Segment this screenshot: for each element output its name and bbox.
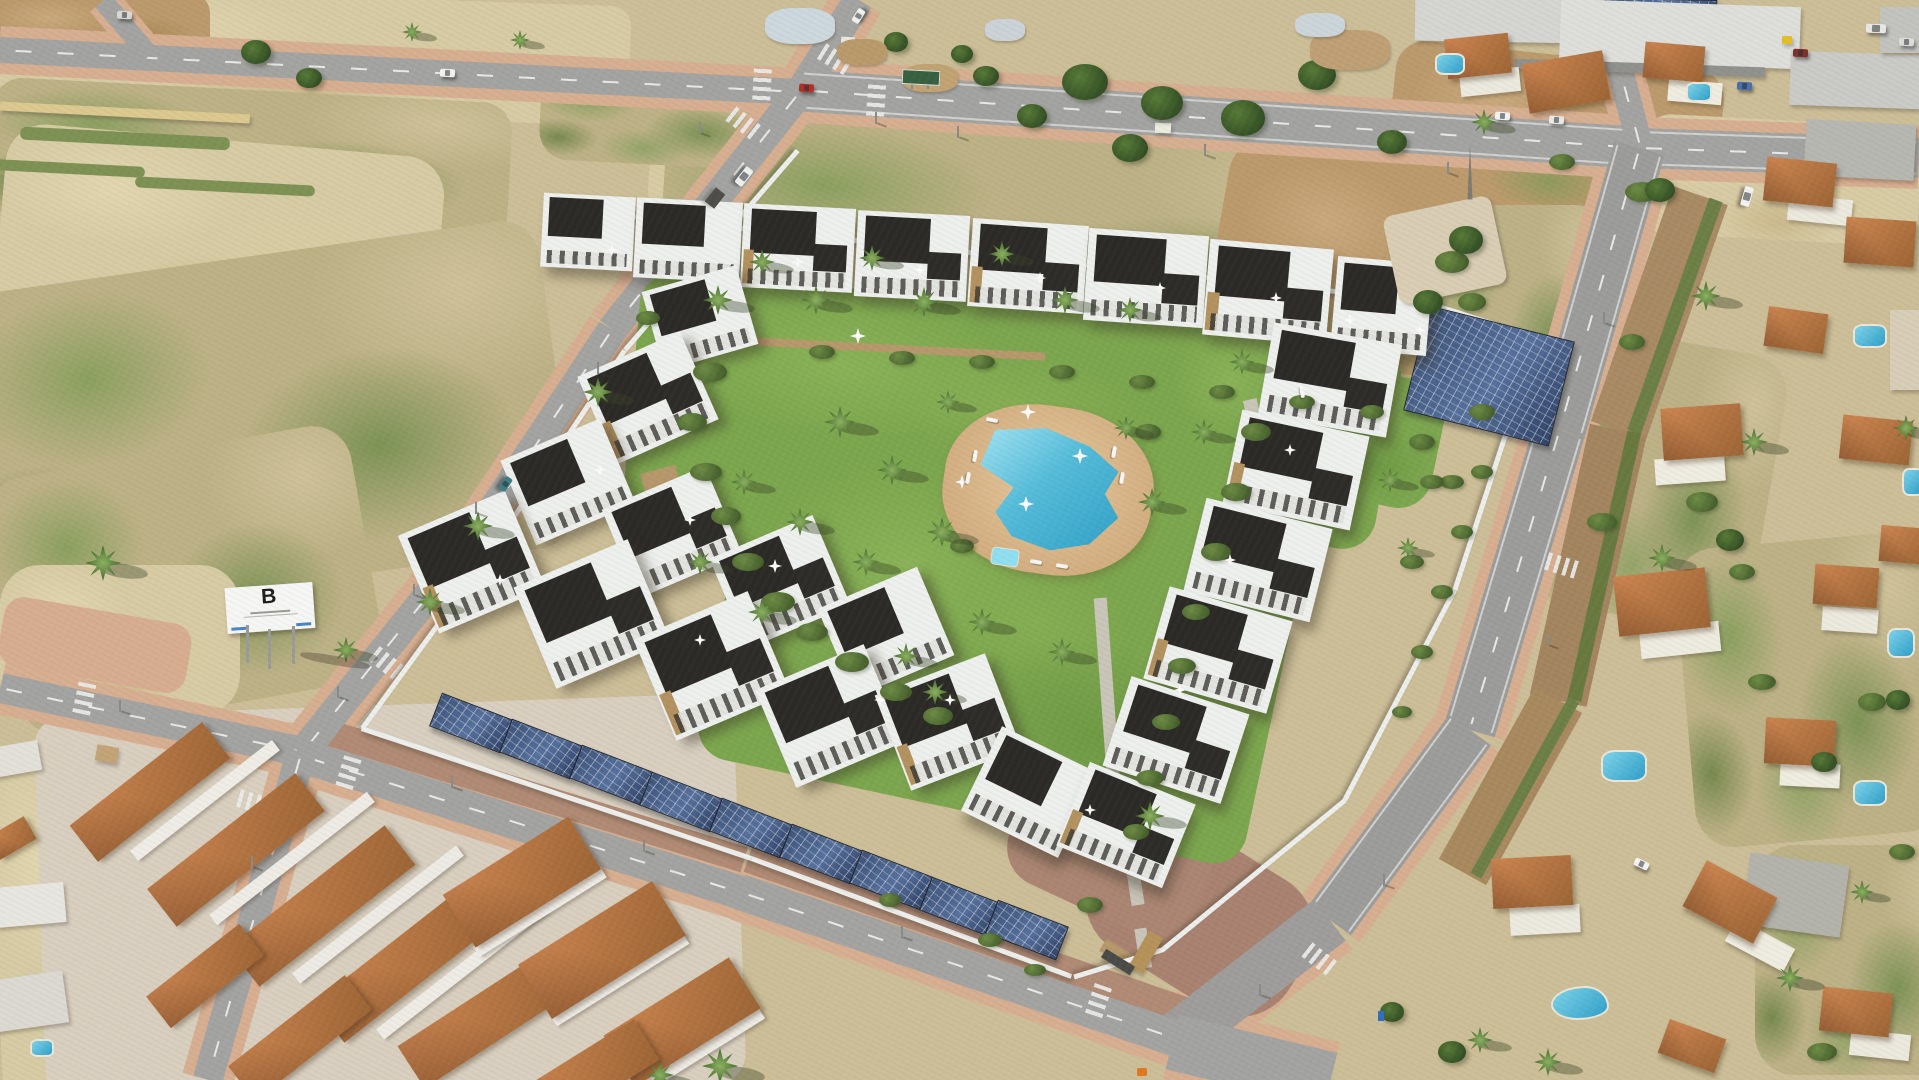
- palm-tree: [852, 548, 880, 576]
- palm-tree: [402, 22, 422, 42]
- bush: [1451, 525, 1473, 539]
- car-windshield: [1872, 25, 1880, 32]
- bush: [879, 893, 901, 907]
- car: [1792, 49, 1807, 58]
- roof-terrace: [813, 244, 848, 273]
- car-windshield: [739, 171, 749, 181]
- palm-tree: [801, 285, 831, 315]
- bush: [1469, 404, 1495, 420]
- bush: [1168, 658, 1196, 674]
- palm-tree: [877, 455, 907, 485]
- villa-roof: [1879, 525, 1919, 565]
- light-pole: [251, 856, 253, 868]
- villa-roof: [1843, 217, 1916, 268]
- roof-terrace: [605, 587, 653, 634]
- bush: [809, 345, 835, 359]
- bush: [1471, 465, 1493, 479]
- light-pole: [699, 122, 701, 134]
- light-pole: [643, 840, 645, 852]
- apartment-building: [740, 203, 856, 293]
- bush: [1458, 293, 1486, 311]
- villa-roof: [1819, 986, 1893, 1037]
- swimming-pool: [1601, 750, 1647, 782]
- palm-tree: [968, 608, 996, 636]
- bush: [1360, 405, 1384, 419]
- car: [1633, 857, 1650, 871]
- palm-tree: [463, 511, 493, 541]
- car-windshield: [1499, 113, 1505, 119]
- billboard-leg: [292, 626, 295, 664]
- bush: [1619, 334, 1645, 350]
- road-sign: [1378, 1011, 1384, 1021]
- light-pole: [337, 686, 339, 698]
- bush: [1129, 375, 1155, 389]
- bush: [880, 683, 912, 701]
- roof-terrace: [1161, 274, 1199, 306]
- bush: [1049, 365, 1075, 379]
- villa-roof: [1491, 855, 1574, 909]
- light-pole: [901, 926, 903, 938]
- roof-terrace: [725, 639, 773, 686]
- car: [439, 69, 454, 78]
- car-windshield: [1743, 191, 1751, 200]
- car-windshield: [803, 85, 809, 91]
- bush: [1182, 604, 1210, 620]
- apartment-building: [540, 193, 636, 272]
- car: [1898, 38, 1913, 47]
- palm-tree: [510, 30, 530, 50]
- bush: [796, 623, 828, 641]
- direction-sign: [902, 69, 941, 86]
- bush: [1411, 645, 1433, 659]
- structure: [1789, 51, 1919, 110]
- villa-roof: [1660, 403, 1743, 460]
- bush: [1152, 714, 1180, 730]
- light-pole: [875, 112, 877, 124]
- bush: [711, 507, 741, 525]
- bush: [1587, 513, 1617, 531]
- spa-pool: [990, 546, 1020, 568]
- villa-roof: [1658, 1019, 1727, 1073]
- light-pole: [475, 502, 477, 514]
- light-pole: [451, 776, 453, 788]
- structure: [1155, 123, 1171, 134]
- billboard-accent: [296, 622, 312, 626]
- car-windshield: [1741, 83, 1747, 89]
- palm-tree: [748, 598, 776, 626]
- villa-roof: [1763, 156, 1837, 207]
- roof-terrace: [1309, 468, 1354, 506]
- light-pole: [957, 126, 959, 138]
- tree: [1413, 290, 1443, 314]
- bush: [1077, 897, 1103, 913]
- villa-roof: [1643, 41, 1706, 82]
- light-pole: [1447, 162, 1449, 174]
- tree: [1438, 1041, 1466, 1063]
- car-windshield: [1553, 117, 1559, 123]
- swimming-pool: [1551, 986, 1609, 1020]
- swimming-pool: [1902, 468, 1919, 496]
- bush: [1748, 674, 1776, 690]
- tree: [1017, 104, 1047, 128]
- bush: [1409, 434, 1435, 450]
- palm-tree: [1467, 1027, 1493, 1053]
- tree: [1716, 529, 1744, 551]
- light-pole: [413, 584, 415, 596]
- bush: [1729, 564, 1755, 580]
- palm-tree: [1135, 801, 1165, 831]
- palm-tree: [909, 287, 939, 317]
- billboard-logo: B: [225, 582, 314, 612]
- bush: [732, 553, 764, 571]
- palm-tree: [687, 549, 713, 575]
- tree: [1062, 64, 1108, 101]
- bush: [1221, 483, 1251, 501]
- roof-terrace: [1283, 288, 1323, 322]
- swimming-pool: [1435, 53, 1465, 75]
- car-windshield: [121, 12, 127, 18]
- bush: [889, 351, 915, 365]
- structure: [0, 882, 67, 928]
- car-windshield: [501, 480, 509, 488]
- bush: [1136, 770, 1164, 786]
- roof-terrace: [1185, 740, 1230, 780]
- bush: [923, 707, 953, 725]
- bush: [1431, 585, 1453, 599]
- palm-tree: [922, 679, 948, 705]
- debris-pile: [765, 8, 835, 44]
- bush: [690, 463, 722, 481]
- tree: [884, 32, 908, 51]
- bush: [1024, 964, 1046, 976]
- tree: [1645, 178, 1675, 202]
- structure: [1821, 606, 1879, 634]
- car: [1866, 23, 1886, 33]
- bush: [1392, 706, 1412, 718]
- car: [1736, 82, 1751, 91]
- bush: [1686, 492, 1718, 512]
- stone-cladding: [970, 266, 983, 302]
- roof-terrace: [484, 536, 529, 581]
- structure: [1890, 310, 1919, 390]
- bush: [969, 355, 995, 369]
- car-windshield: [854, 12, 862, 20]
- bush: [1435, 251, 1469, 273]
- bush: [677, 413, 707, 431]
- roof-terrace: [1270, 559, 1315, 598]
- roof-terrace: [1043, 262, 1080, 293]
- light-pole: [1259, 984, 1261, 996]
- tree: [1886, 690, 1910, 709]
- swimming-pool: [30, 1039, 54, 1057]
- light-pole: [1383, 874, 1385, 886]
- work-marker: [1137, 1068, 1147, 1076]
- aerial-photo: B: [0, 0, 1919, 1080]
- roof-terrace: [1228, 649, 1273, 689]
- bush: [1858, 693, 1886, 711]
- billboard-sign: B: [225, 582, 316, 634]
- roof-terrace: [792, 557, 835, 599]
- billboard-leg: [246, 625, 249, 663]
- bush: [636, 311, 660, 325]
- billboard-leg: [268, 629, 271, 669]
- light-pole: [119, 700, 121, 712]
- debris-pile: [837, 39, 887, 65]
- bush: [1889, 844, 1915, 860]
- villa-roof: [1613, 567, 1711, 636]
- bush: [1209, 385, 1235, 399]
- palm-tree: [893, 643, 919, 669]
- car: [1494, 111, 1510, 120]
- tree: [1221, 100, 1265, 135]
- swimming-pool: [1853, 324, 1887, 348]
- light-pole: [1204, 144, 1206, 156]
- car-windshield: [444, 70, 450, 76]
- structure: [1509, 904, 1580, 936]
- palm-tree: [786, 508, 814, 536]
- car-windshield: [1903, 39, 1909, 45]
- billboard-accent: [231, 627, 247, 631]
- roof-terrace: [660, 373, 703, 415]
- light-pole: [597, 362, 599, 374]
- bush: [978, 933, 1002, 947]
- car: [1548, 115, 1564, 124]
- swimming-pool: [1887, 628, 1915, 658]
- bush: [1807, 1043, 1837, 1061]
- light-pole: [1547, 634, 1549, 646]
- debris-pile: [985, 19, 1025, 41]
- stone-cladding: [1205, 292, 1219, 331]
- car: [798, 83, 814, 92]
- palm-tree: [703, 285, 733, 315]
- bush: [693, 362, 727, 382]
- palm-tree: [583, 377, 613, 407]
- palm-tree: [927, 517, 957, 547]
- car-windshield: [1797, 50, 1803, 56]
- bush: [1201, 543, 1231, 561]
- debris-pile: [1295, 13, 1345, 37]
- tree: [1141, 86, 1183, 120]
- palm-tree: [416, 588, 444, 616]
- bush: [835, 652, 869, 672]
- bush: [1123, 824, 1149, 840]
- tree: [1377, 130, 1407, 154]
- tree: [241, 40, 271, 64]
- bush: [1549, 154, 1575, 170]
- structure: [1782, 36, 1792, 44]
- swimming-pool: [1686, 82, 1712, 102]
- roof-terrace: [926, 252, 961, 281]
- villa-roof: [1839, 414, 1913, 465]
- tree: [1112, 134, 1148, 163]
- tree: [1449, 226, 1483, 253]
- swimming-pool: [1853, 780, 1887, 806]
- stone-cladding: [742, 249, 754, 283]
- bush: [1420, 475, 1444, 489]
- car-windshield: [1637, 860, 1645, 867]
- tree: [951, 45, 973, 63]
- car: [116, 11, 131, 20]
- crosswalk: [752, 69, 772, 104]
- light-pole: [1603, 312, 1605, 324]
- palm-tree: [1691, 281, 1721, 311]
- villa-roof: [1813, 564, 1880, 608]
- bush: [1241, 423, 1271, 441]
- villa-roof: [1764, 306, 1829, 354]
